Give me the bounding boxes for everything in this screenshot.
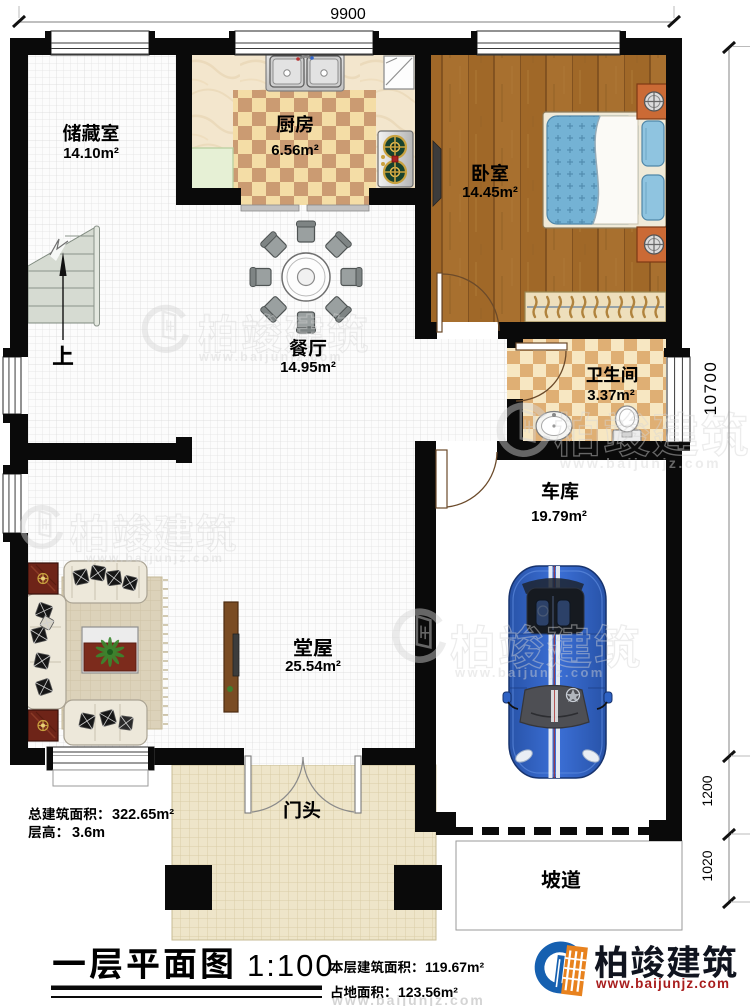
svg-text:322.65m²: 322.65m² — [112, 807, 174, 823]
svg-text:14.95m²: 14.95m² — [280, 359, 336, 376]
svg-text:1200: 1200 — [699, 775, 715, 806]
svg-text:www.baijunjz.com: www.baijunjz.com — [454, 665, 605, 680]
svg-text:19.79m²: 19.79m² — [531, 508, 587, 525]
svg-text:14.10m²: 14.10m² — [63, 145, 119, 162]
svg-text:1:100: 1:100 — [247, 948, 335, 983]
svg-text:119.67m²: 119.67m² — [425, 959, 484, 975]
svg-text:www.baijunjz.com: www.baijunjz.com — [85, 551, 224, 565]
svg-text:123.56m²: 123.56m² — [398, 984, 458, 1000]
svg-text:25.54m²: 25.54m² — [285, 658, 341, 675]
svg-text:14.45m²: 14.45m² — [462, 184, 518, 201]
svg-text:www.baijunjz.com: www.baijunjz.com — [559, 455, 721, 471]
svg-text:10700: 10700 — [701, 361, 720, 416]
svg-text:9900: 9900 — [330, 6, 366, 23]
svg-text:3.37m²: 3.37m² — [587, 387, 635, 404]
svg-text:6.56m²: 6.56m² — [271, 142, 319, 159]
svg-text:www.baijunjz.com: www.baijunjz.com — [595, 976, 730, 991]
svg-text:3.6m: 3.6m — [72, 825, 105, 841]
svg-text:1020: 1020 — [699, 850, 715, 881]
